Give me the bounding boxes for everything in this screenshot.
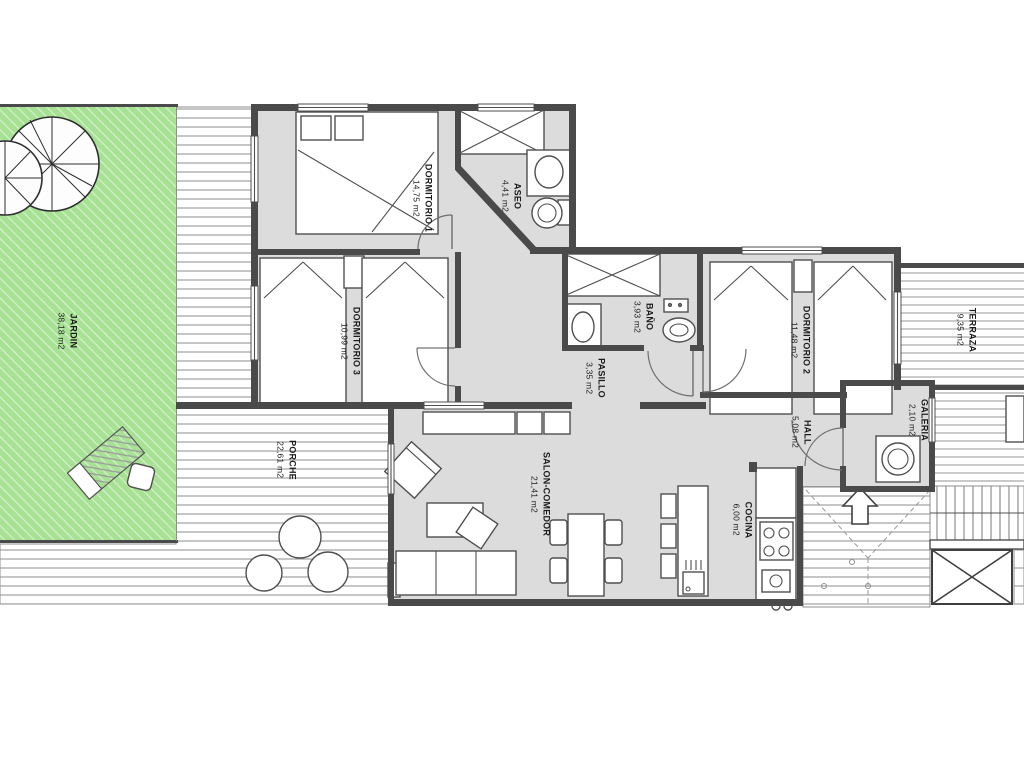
room-name: SALON-COMEDOR — [540, 452, 552, 536]
entry-walkway — [803, 486, 930, 607]
floor-plan-canvas: JARDIN 38,18 m2 PORCHE 22,61 m2 DORMITOR… — [0, 0, 1024, 768]
room-name: HALL — [801, 416, 813, 448]
room-area: 9,35 m2 — [955, 308, 966, 352]
room-area: 3,93 m2 — [632, 301, 643, 333]
room-label-aseo: ASEO 4,41 m2 — [500, 180, 523, 212]
room-name: PORCHE — [286, 440, 298, 480]
room-label-bano: BAÑO 3,93 m2 — [632, 301, 655, 333]
room-area: 38,18 m2 — [56, 312, 67, 349]
room-name: COCINA — [742, 502, 754, 539]
room-label-dormitorio2: DORMITORIO 2 11,48 m2 — [789, 306, 812, 374]
room-label-dormitorio1: DORMITORIO 1 14,75 m2 — [411, 164, 434, 232]
washing-machine-galeria — [876, 436, 920, 482]
room-area: 14,75 m2 — [411, 164, 422, 232]
sideboard-salon — [423, 412, 570, 434]
room-label-dormitorio3: DORMITORIO 3 10,99 m2 — [339, 307, 362, 375]
room-name: ASEO — [511, 180, 523, 212]
room-name: GALERIA — [918, 399, 930, 441]
room-name: BAÑO — [643, 301, 655, 333]
sink-bano — [565, 304, 601, 350]
room-label-cocina: COCINA 6,00 m2 — [731, 502, 754, 539]
closet-hallway — [564, 254, 660, 296]
floor-plan-drawing — [0, 0, 1024, 768]
room-area: 3,35 m2 — [584, 358, 595, 398]
room-area: 11,48 m2 — [789, 306, 800, 374]
room-label-salon: SALON-COMEDOR 21,41 m2 — [529, 452, 552, 536]
room-area: 22,61 m2 — [275, 440, 286, 480]
garden-side-table — [126, 462, 155, 491]
room-label-galeria: GALERIA 2,10 m2 — [907, 399, 930, 441]
room-label-pasillo: PASILLO 3,35 m2 — [584, 358, 607, 398]
sink-aseo — [527, 150, 570, 196]
room-label-terraza: TERRAZA 9,35 m2 — [955, 308, 978, 352]
room-name: DORMITORIO 3 — [350, 307, 362, 375]
room-area: 2,10 m2 — [907, 399, 918, 441]
toilet-aseo — [532, 198, 570, 228]
room-name: JARDIN — [67, 312, 79, 349]
room-area: 10,99 m2 — [339, 307, 350, 375]
room-label-hall: HALL 5,08 m2 — [790, 416, 813, 448]
room-name: PASILLO — [595, 358, 607, 398]
room-area: 21,41 m2 — [529, 452, 540, 536]
room-area: 5,08 m2 — [790, 416, 801, 448]
sofa-salon — [388, 551, 516, 597]
kitchen-counter — [756, 468, 796, 600]
room-area: 4,41 m2 — [500, 180, 511, 212]
wardrobe-aseo — [458, 110, 544, 154]
room-area: 6,00 m2 — [731, 502, 742, 539]
room-name: DORMITORIO 2 — [800, 306, 812, 374]
room-name: TERRAZA — [966, 308, 978, 352]
staircase — [930, 486, 1024, 604]
room-name: DORMITORIO 1 — [422, 164, 434, 232]
room-label-porche: PORCHE 22,61 m2 — [275, 440, 298, 480]
room-label-jardin: JARDIN 38,18 m2 — [56, 312, 79, 349]
